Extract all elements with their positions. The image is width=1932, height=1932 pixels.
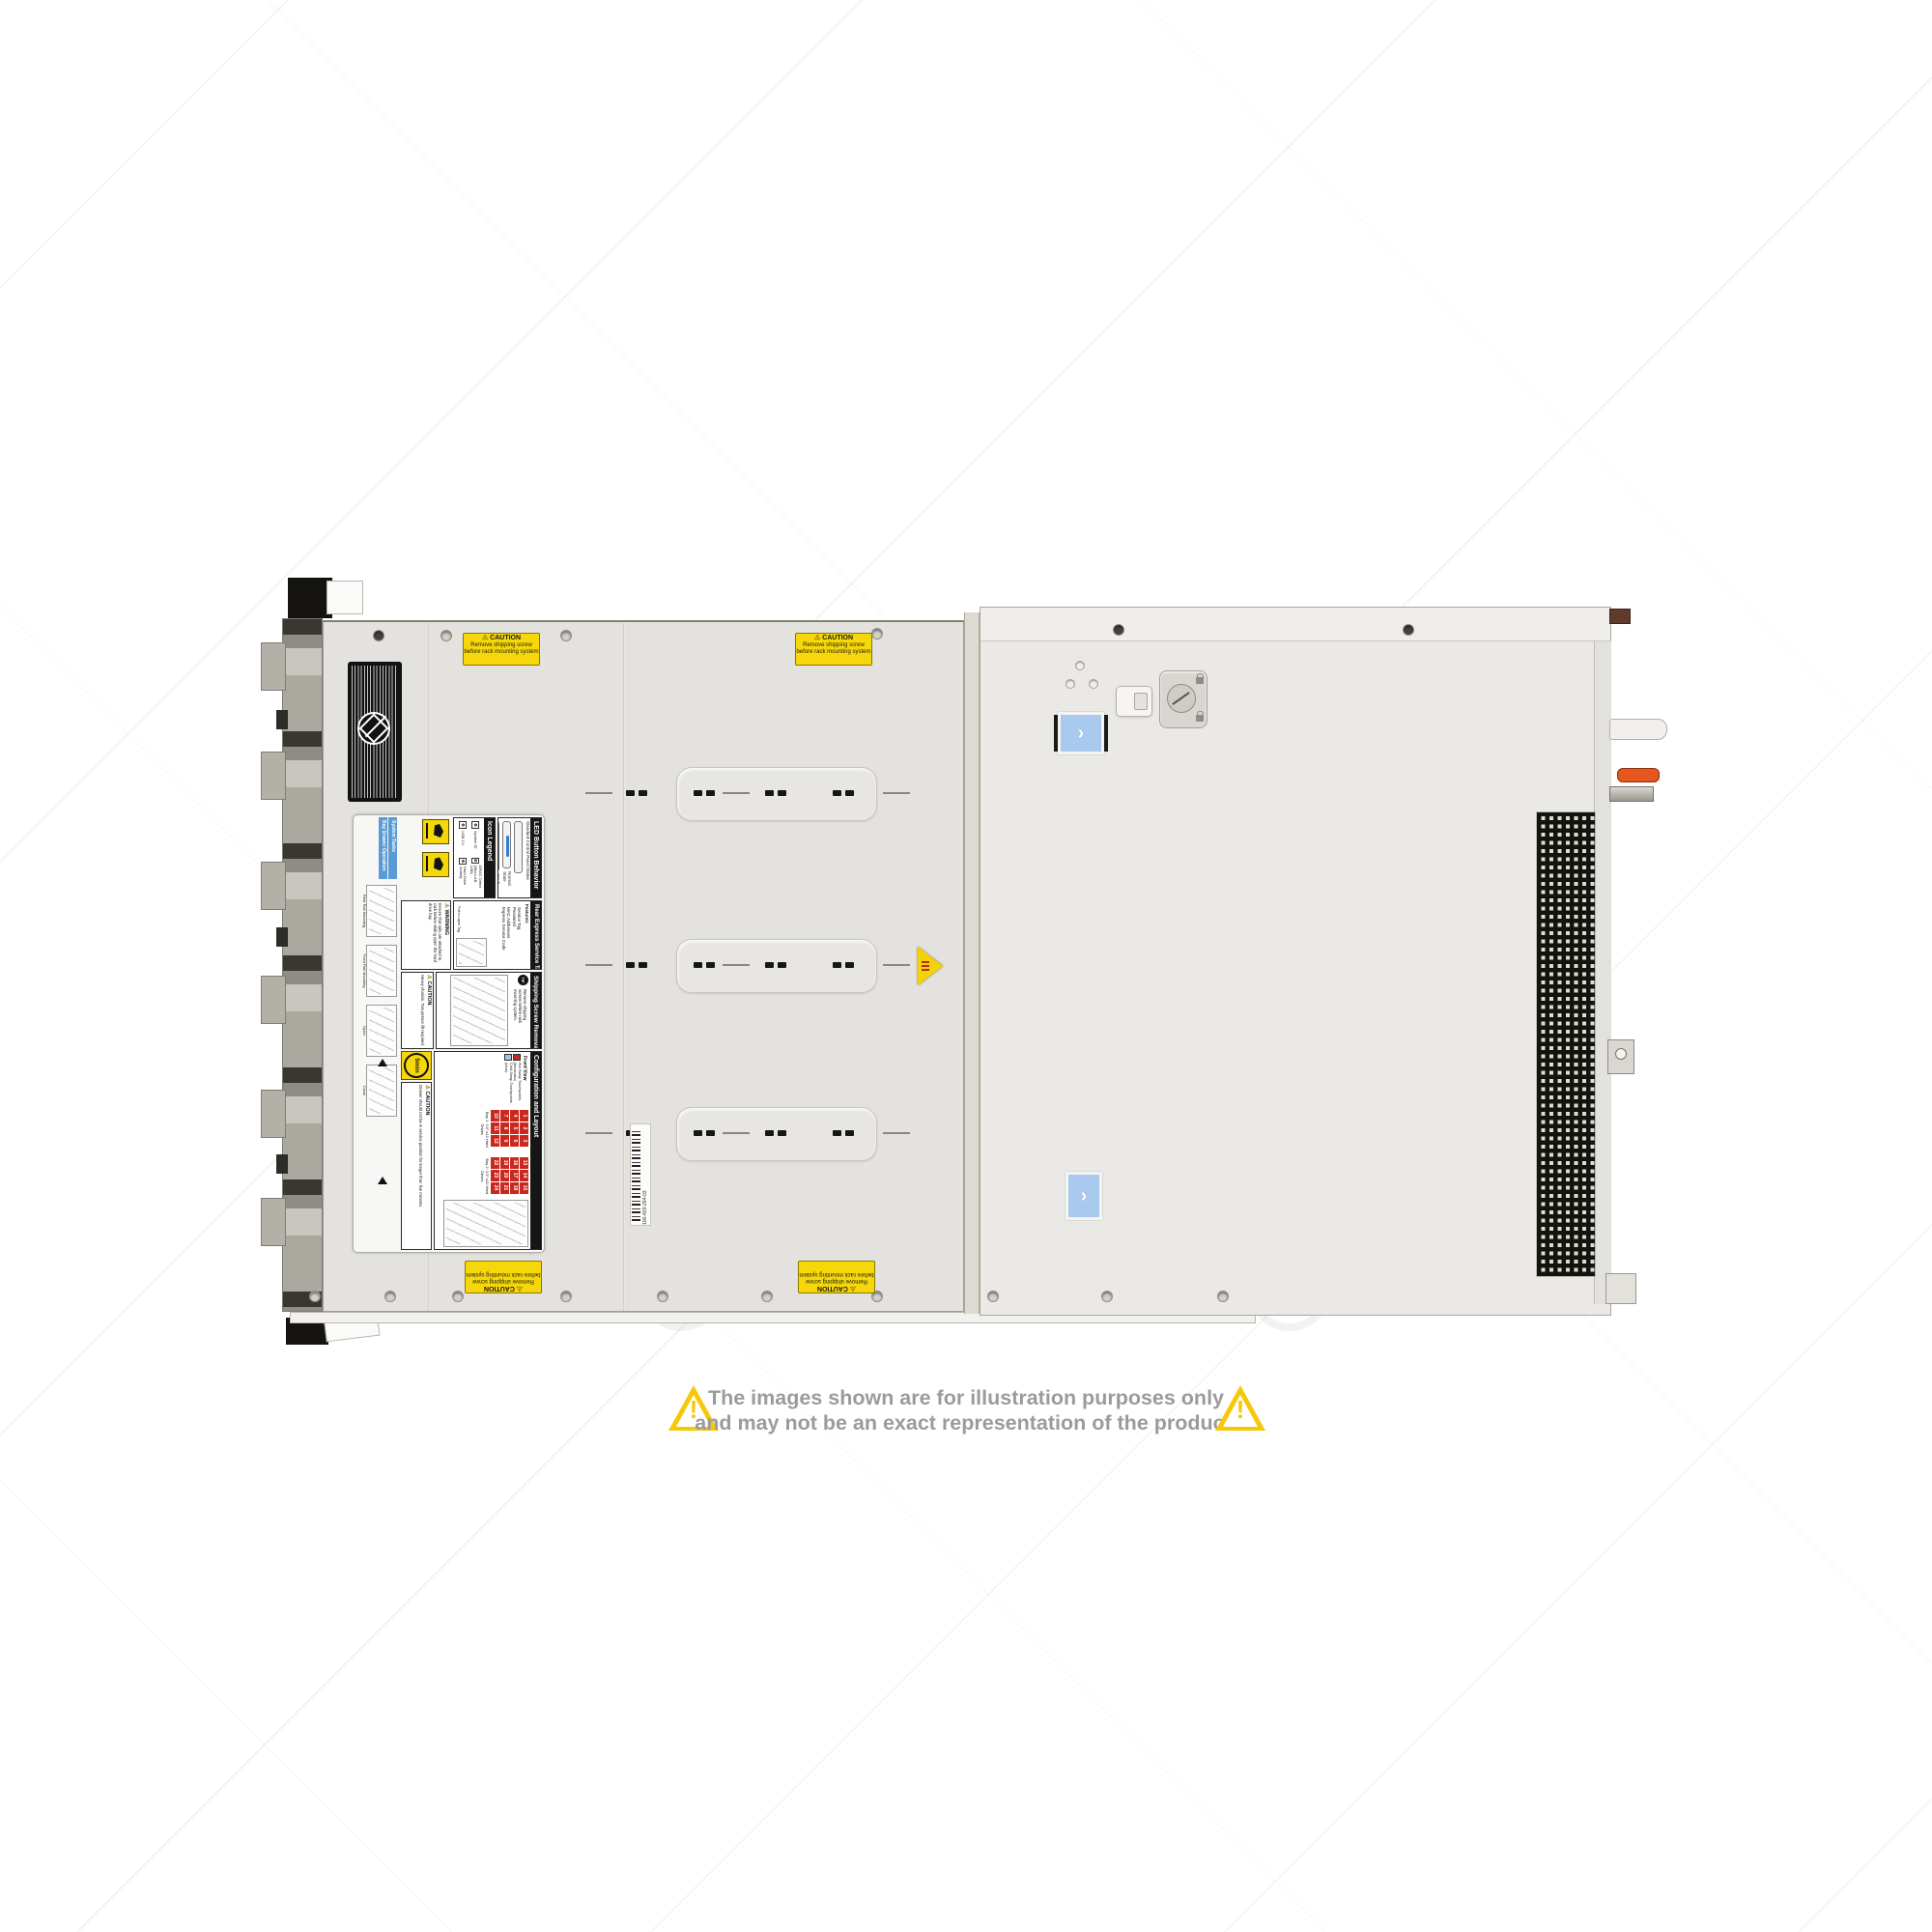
task-step: Open (362, 1005, 398, 1057)
drive-slot: 1 (520, 1110, 528, 1122)
release-lever-orange (1617, 768, 1660, 782)
drive-slot: 23 (491, 1170, 499, 1181)
drive-slot: 7 (500, 1110, 509, 1122)
front-bay-handle (261, 862, 286, 910)
front-latch (276, 710, 288, 729)
rear-vent-grid (1536, 811, 1596, 1277)
warning-triangle-sticker (918, 947, 943, 985)
unlock-icon (1196, 677, 1204, 684)
drive-slot: 4 (510, 1110, 519, 1122)
drive-slot: 2 (520, 1122, 528, 1134)
drive-slot: 8 (500, 1122, 509, 1134)
icon-legend-section: Icon Legend ⚙System ID⚙iDRAC Direct (Mic… (453, 817, 496, 898)
barcode-number: 100-400-294-03 (641, 1124, 650, 1225)
rear-tag-feature: Service Tag (517, 907, 523, 969)
cover-release-arrow-sticker: › (1058, 712, 1104, 754)
front-bay-handle (261, 642, 286, 691)
task-step: Close (362, 1065, 398, 1117)
step-arrow-icon (378, 1177, 387, 1184)
icon-legend-item: ⚙iDRAC Direct (Micro-AB USB) (469, 858, 483, 893)
panel-seam (623, 623, 625, 1311)
led-state-row: Normal State (502, 821, 512, 895)
rear-express-service-tag-section: Rear Express Service Tag Features: Servi… (453, 900, 542, 970)
drive-slot: 6 (510, 1135, 519, 1147)
cover-latch-slider (1116, 686, 1152, 717)
drive-slot: 10 (491, 1110, 499, 1122)
step-arrow-icon (378, 1059, 387, 1066)
system-tasks-band: System Tasks Bay Drawer Operation Rear R… (355, 817, 399, 1250)
front-bay-handle (261, 976, 286, 1024)
barcode-stripes (632, 1128, 640, 1221)
configuration-layout-section: Configuration and Layout Front View Hot … (434, 1051, 542, 1250)
rear-metal-latch (1609, 786, 1654, 802)
barcode-label: 100-400-294-03 (630, 1123, 651, 1226)
pinch-hazard-stickers (401, 817, 451, 898)
drive-slot: 3 (520, 1135, 528, 1147)
led-state-row: Fault State (497, 821, 500, 895)
rear-tag-feature: MAC Addresses (506, 907, 512, 969)
touchpoint-legend-item: Hot Swap Touchpoints (terracotta) (513, 1054, 522, 1106)
caution-sticker-shipping-screw: ⚠ CAUTION Remove shipping screw before r… (465, 1261, 542, 1293)
drive-slot: 14 (520, 1170, 528, 1181)
icon-legend-item: ⚙Hard Drive Activity (459, 858, 468, 893)
warning-rails-section: ⚠ WARNING Ensure that rails are attached… (401, 900, 451, 970)
caution-title: ⚠ CAUTION (464, 634, 539, 642)
drive-bay-map: 131415161718192021222324Bay 2: 3.5" x12 … (443, 1157, 528, 1197)
task-step: Front Rail Mounting (362, 945, 398, 997)
drive-slot: 21 (500, 1182, 509, 1194)
touchpoint-legend-item: Cold Swap Touchpoints (blue) (504, 1054, 513, 1106)
drive-slot: 9 (500, 1135, 509, 1147)
product-photo-canvas: COMPAN COMPAN COMPAN COMPAN COMPAN COMPA… (0, 0, 1932, 1932)
rear-tag-feature: Password (512, 907, 518, 969)
drive-slot: 19 (500, 1157, 509, 1169)
disclaimer-line1: The images shown are for illustration pu… (483, 1385, 1449, 1410)
drive-slot: 24 (491, 1182, 499, 1194)
drive-slot: 15 (520, 1182, 528, 1194)
top-cover-rear-fold (1594, 641, 1611, 1304)
shipping-screw-sketch (450, 975, 508, 1046)
rear-mid-latch (1607, 1039, 1634, 1074)
task-step: Rear Rail Mounting (362, 885, 398, 937)
disclaimer-line2: and may not be an exact representation o… (483, 1410, 1449, 1435)
caution-sticker-shipping-screw: ⚠ CAUTION Remove shipping screw before r… (798, 1261, 875, 1293)
chassis-divider (964, 612, 980, 1314)
caution-heavy-section: ⚠ CAUTION Heavy chassis. Two person lift… (401, 972, 434, 1049)
drive-slot: 13 (520, 1157, 528, 1169)
drive-slot: 12 (491, 1135, 499, 1147)
drive-slot: 16 (510, 1157, 519, 1169)
led-button-behavior-section: LED Button Behavior Standard Control Pan… (497, 817, 542, 898)
rear-handle (1609, 719, 1667, 740)
front-bay-handle (261, 752, 286, 800)
top-cover-front-band (980, 607, 1611, 641)
icon-legend-item: ⚙System ID (469, 821, 483, 856)
regulatory-label (348, 662, 402, 802)
rear-bottom-bracket (1605, 1273, 1636, 1304)
service-tag-sketch (456, 938, 487, 967)
pinch-hazard-icon (422, 852, 449, 877)
drawer-isometric-sketch (443, 1200, 528, 1247)
front-bay-handle (261, 1198, 286, 1246)
caution-drawer-section: ⚠ CAUTION Drawer should not be in servic… (401, 1082, 432, 1250)
drive-slot: 17 (510, 1170, 519, 1181)
caution-sticker-shipping-screw: ⚠ CAUTION Remove shipping screw before r… (795, 633, 872, 666)
bay-label: Bay 2: 3.5" x12 Hard Drives (480, 1157, 490, 1197)
rear-corner-nub (1609, 609, 1631, 624)
caution-line2: before rack mounting system (464, 649, 539, 656)
drive-slot: 18 (510, 1182, 519, 1194)
server-front-edge (282, 618, 323, 1312)
caution-line1: Remove shipping screw (464, 642, 539, 649)
cover-keylock (1159, 670, 1207, 728)
five-minute-timer-icon: 5min (401, 1051, 432, 1080)
keylock-screw-icon (1167, 684, 1196, 713)
front-bay-handle (261, 1090, 286, 1138)
rack-ear-top-left-latch (327, 581, 363, 614)
cover-release-arrow-sticker: › (1065, 1172, 1102, 1220)
shipping-screw-removal-section: Shipping Screw Removal TIP Remove shippi… (436, 972, 542, 1049)
drive-slot: 22 (491, 1157, 499, 1169)
drive-slot: 11 (491, 1122, 499, 1134)
rear-tag-feature: Express Service Code (501, 907, 507, 969)
drive-slot: 20 (500, 1170, 509, 1181)
regulatory-mark-icon (357, 712, 390, 745)
drive-slot: 5 (510, 1122, 519, 1134)
caution-sticker-shipping-screw: ⚠ CAUTION Remove shipping screw before r… (463, 633, 540, 666)
front-latch (276, 927, 288, 947)
icon-legend-item: ⚙USB 2.0 (459, 821, 468, 856)
front-latch (276, 1154, 288, 1174)
pinch-hazard-icon (422, 819, 449, 844)
service-info-label: LED Button Behavior Standard Control Pan… (353, 814, 545, 1253)
warning-triangle-icon: ! (1215, 1385, 1265, 1431)
drive-bay-map: 123456789101112Bay 1: 3.5" x12 Hard Driv… (443, 1110, 528, 1150)
bay-label: Bay 1: 3.5" x12 Hard Drives (480, 1110, 490, 1150)
disclaimer-text: The images shown are for illustration pu… (483, 1385, 1449, 1435)
lock-icon (1196, 715, 1204, 722)
